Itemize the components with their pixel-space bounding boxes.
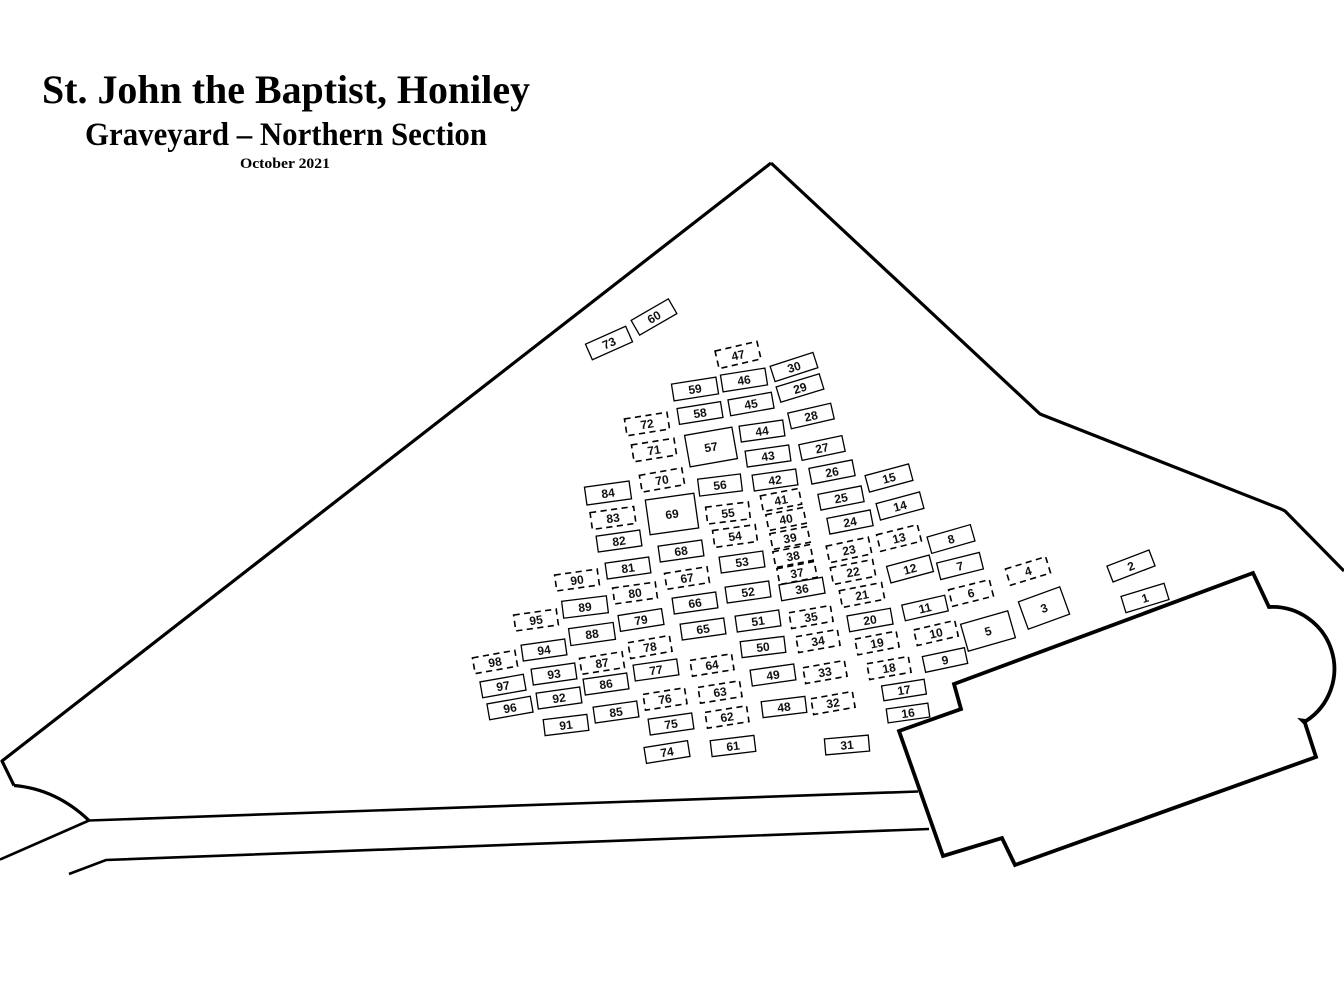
svg-text:84: 84 [600,485,615,501]
svg-text:66: 66 [687,595,702,611]
svg-text:70: 70 [654,472,670,488]
svg-text:49: 49 [765,667,780,683]
svg-text:92: 92 [551,690,566,706]
svg-text:80: 80 [627,585,642,601]
svg-text:94: 94 [536,642,551,658]
svg-text:51: 51 [750,613,765,629]
svg-text:88: 88 [584,626,599,642]
svg-text:63: 63 [712,684,728,700]
svg-text:97: 97 [495,678,511,694]
svg-text:54: 54 [727,528,742,544]
svg-text:89: 89 [578,599,593,615]
svg-text:46: 46 [736,372,752,388]
svg-text:87: 87 [594,655,610,671]
svg-text:90: 90 [569,572,584,588]
svg-text:31: 31 [840,738,855,753]
svg-text:20: 20 [862,612,878,628]
svg-text:72: 72 [639,416,655,432]
svg-text:71: 71 [646,442,662,458]
svg-text:96: 96 [502,700,518,716]
svg-text:62: 62 [719,709,735,725]
svg-text:56: 56 [713,477,728,493]
svg-text:86: 86 [598,676,613,692]
svg-text:55: 55 [721,505,736,521]
svg-text:50: 50 [756,639,771,655]
svg-text:78: 78 [642,639,658,655]
svg-text:48: 48 [777,699,792,715]
svg-text:St. John the Baptist, Honiley: St. John the Baptist, Honiley [42,67,530,112]
svg-text:77: 77 [648,662,663,678]
svg-text:57: 57 [703,439,719,455]
svg-text:59: 59 [687,381,703,397]
svg-text:61: 61 [726,738,741,754]
svg-text:75: 75 [663,716,678,732]
svg-text:43: 43 [760,448,775,464]
svg-text:17: 17 [896,682,912,698]
svg-text:18: 18 [881,660,897,676]
svg-text:76: 76 [657,691,673,707]
svg-text:45: 45 [743,396,759,412]
svg-text:95: 95 [528,612,543,628]
svg-text:16: 16 [900,705,915,721]
svg-text:82: 82 [611,533,626,549]
svg-text:69: 69 [664,506,679,522]
svg-text:85: 85 [608,704,623,720]
svg-text:42: 42 [767,472,782,488]
svg-text:36: 36 [794,581,810,597]
svg-text:79: 79 [633,612,649,628]
svg-text:32: 32 [825,695,841,711]
svg-text:44: 44 [754,423,769,439]
svg-text:53: 53 [734,554,749,570]
svg-text:68: 68 [673,543,688,559]
svg-text:34: 34 [810,633,826,649]
svg-text:Graveyard – Northern Section: Graveyard – Northern Section [85,117,487,153]
svg-text:64: 64 [704,657,720,673]
svg-text:74: 74 [659,744,675,760]
svg-text:33: 33 [817,664,833,680]
svg-text:35: 35 [803,609,819,625]
svg-text:52: 52 [740,584,755,600]
svg-text:83: 83 [605,510,620,526]
svg-text:October 2021: October 2021 [240,156,330,172]
svg-text:65: 65 [695,621,710,637]
svg-text:58: 58 [692,405,708,421]
svg-text:98: 98 [487,654,503,670]
svg-text:81: 81 [620,560,635,576]
svg-text:67: 67 [679,570,695,586]
svg-text:93: 93 [546,666,561,682]
svg-text:91: 91 [559,717,574,733]
